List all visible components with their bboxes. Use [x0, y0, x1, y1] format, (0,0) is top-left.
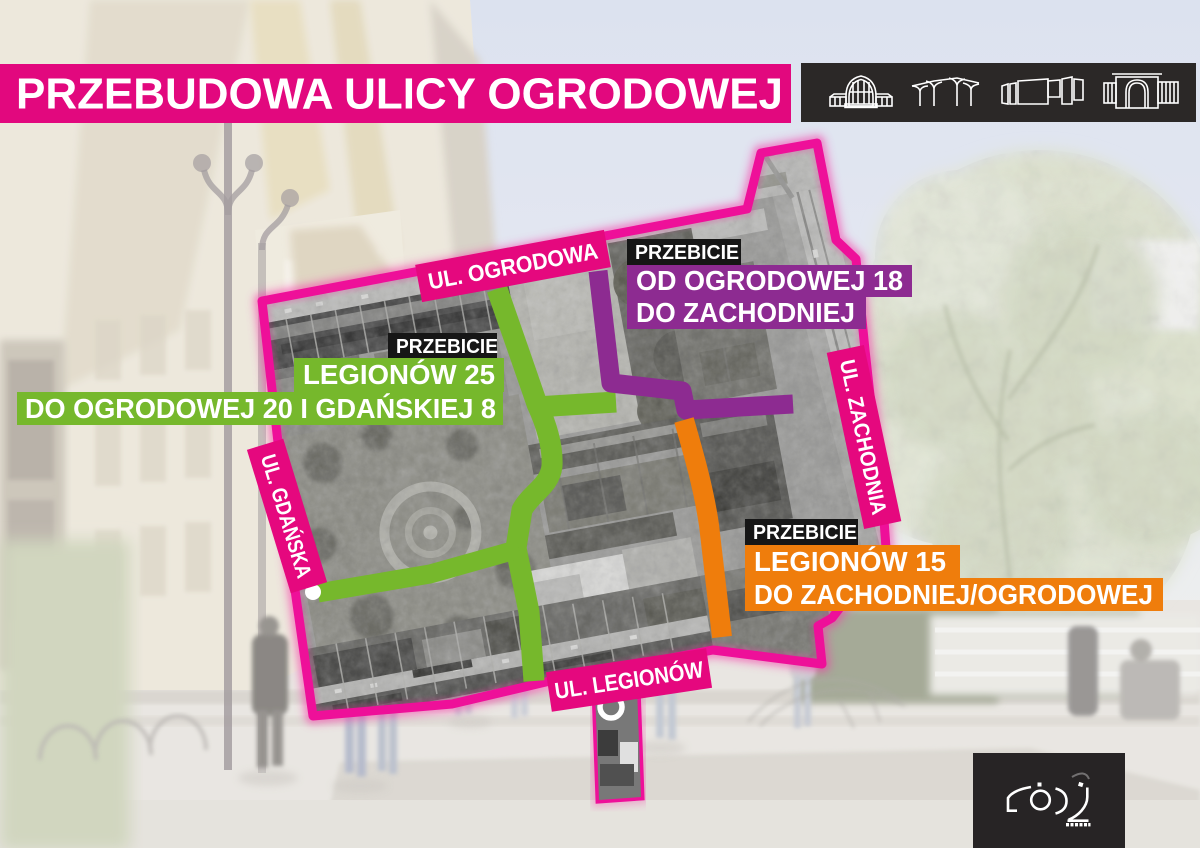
svg-text:PRZEBICIE: PRZEBICIE: [635, 242, 739, 264]
svg-text:OD OGRODOWEJ 18: OD OGRODOWEJ 18: [636, 265, 903, 296]
svg-text:PRZEBICIE: PRZEBICIE: [396, 336, 498, 358]
svg-text:DO OGRODOWEJ 20 I GDAŃSKIEJ 8: DO OGRODOWEJ 20 I GDAŃSKIEJ 8: [25, 393, 496, 424]
svg-text:PRZEBUDOWA ULICY OGRODOWEJ: PRZEBUDOWA ULICY OGRODOWEJ: [16, 71, 783, 119]
svg-text:DO ZACHODNIEJ/OGRODOWEJ: DO ZACHODNIEJ/OGRODOWEJ: [754, 579, 1153, 610]
svg-text:DO ZACHODNIEJ: DO ZACHODNIEJ: [636, 297, 855, 328]
svg-text:PRZEBICIE: PRZEBICIE: [753, 522, 857, 544]
svg-text:LEGIONÓW 25: LEGIONÓW 25: [303, 359, 495, 390]
svg-text:LEGIONÓW 15: LEGIONÓW 15: [754, 546, 946, 577]
